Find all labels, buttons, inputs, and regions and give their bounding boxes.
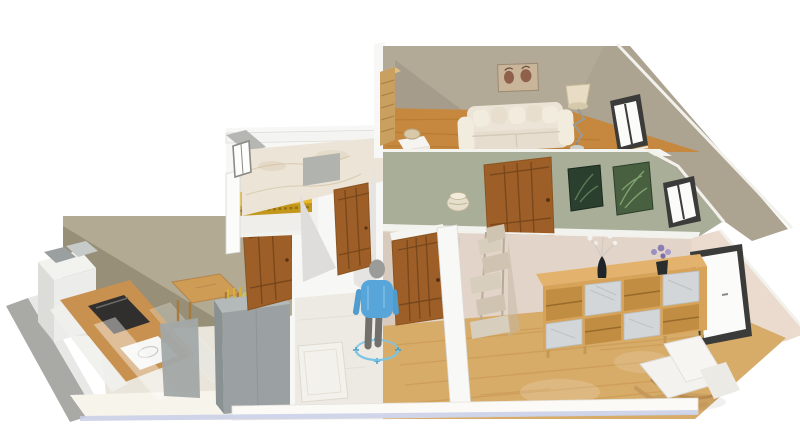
sideboard-marble-door[interactable]	[585, 281, 621, 316]
3d-view-canvas[interactable]	[0, 0, 800, 427]
marble-blotch	[258, 161, 286, 171]
pillow	[491, 107, 508, 125]
sideboard-marble-door[interactable]	[624, 309, 660, 340]
tall-gray-cabinet[interactable]	[214, 292, 290, 414]
window-handle	[722, 294, 728, 295]
3d-view-stage	[0, 0, 800, 427]
door-handle	[364, 226, 367, 229]
botanical-print-light[interactable]	[613, 162, 653, 215]
bathroom-window[interactable]	[233, 141, 251, 177]
door-handle	[436, 278, 440, 282]
door-handle	[546, 198, 550, 202]
door-handle	[285, 258, 289, 262]
botanical-print-dark[interactable]	[568, 165, 603, 211]
floor-pot[interactable]	[447, 193, 469, 212]
front-door[interactable]	[392, 232, 444, 325]
gray-cabinet-small[interactable]	[160, 318, 200, 398]
figure-head	[369, 260, 385, 279]
hall-door[interactable]	[334, 183, 371, 275]
sideboard-marble-door[interactable]	[663, 271, 699, 306]
living-dining-room	[383, 224, 800, 419]
basket[interactable]	[404, 129, 420, 139]
yellow-room-left-wall	[226, 170, 240, 254]
kitchen	[6, 216, 302, 422]
pillow	[525, 104, 542, 122]
hallway-rug[interactable]	[298, 342, 348, 402]
figure-torso	[361, 280, 393, 318]
wall-art[interactable]	[498, 63, 539, 91]
